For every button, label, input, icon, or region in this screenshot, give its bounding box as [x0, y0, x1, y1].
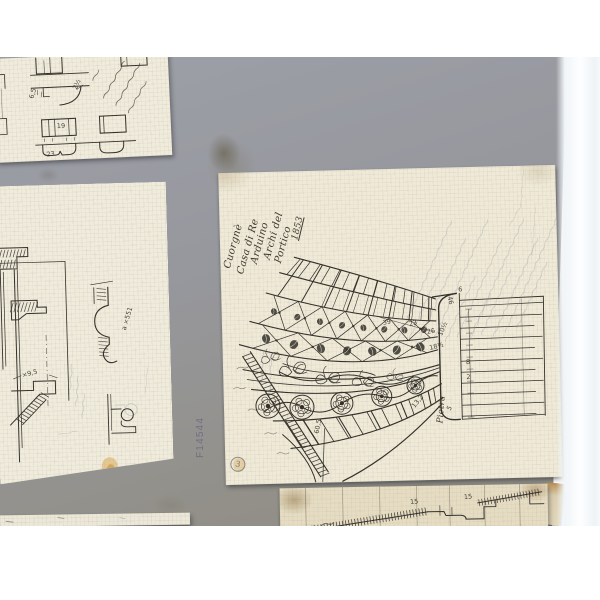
photo-margin-bottom [0, 526, 600, 600]
dimension-label: 2 [466, 373, 470, 381]
dimension-label: 6 [458, 285, 462, 293]
sheet-left-profile-studies: a ×551 ×9,5 [0, 182, 174, 485]
dimension-label: 15 [410, 497, 419, 506]
sheet-topleft-molding-studies: 19 23 6,5 2½ [0, 51, 172, 163]
dimension-label: 26 [426, 326, 436, 335]
photo-margin-top [0, 0, 600, 57]
photo-margin-right [556, 0, 600, 600]
sheet-central-portico-arch: Cuorgnè Casa di Re Arduino Archi del Por… [218, 165, 563, 485]
archive-number-label: F14544 [195, 417, 206, 458]
dimension-label: 23 [46, 149, 55, 158]
archival-photo: 19 23 6,5 2½ a ×551 ×9,5 Cuorgnè Casa di… [0, 0, 600, 600]
left-drawing [0, 182, 174, 485]
dimension-label: 15 [464, 492, 473, 501]
topleft-drawing [0, 51, 172, 163]
dimension-label: 8 [466, 358, 470, 366]
dimension-label: 19 [57, 122, 66, 130]
